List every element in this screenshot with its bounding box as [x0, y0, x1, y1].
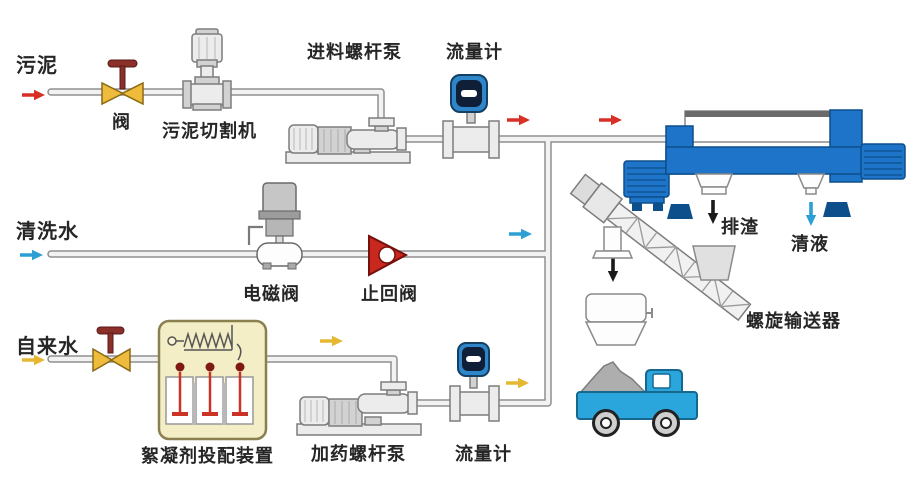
label-valve: 阀 [112, 114, 131, 132]
truck-wheel-icon [594, 411, 619, 436]
process-flow-diagram: 污泥 阀 污泥切割机 进料螺杆泵 流量计 清洗水 电磁阀 止回阀 自来水 絮凝剂… [0, 0, 921, 486]
pump-inlet-flange [381, 382, 406, 390]
decanter-centrifuge-device [624, 110, 905, 219]
label-feed-screw-pump: 进料螺杆泵 [307, 44, 402, 62]
label-tap-water: 自来水 [16, 336, 79, 356]
chemical-flow-arrow-icon [506, 378, 529, 388]
label-solenoid-valve: 电磁阀 [243, 286, 300, 304]
chemical-flow-arrow-icon [320, 336, 343, 346]
sludge-cutter-device [183, 29, 231, 110]
sludge-flow-arrow-icon [22, 90, 45, 100]
diagram-canvas [0, 0, 921, 486]
sludge-flow-arrow-icon [599, 115, 622, 125]
label-screw-conveyor: 螺旋输送器 [746, 313, 841, 331]
label-dosing-screw-pump: 加药螺杆泵 [311, 446, 406, 464]
label-clear-liquid: 清液 [791, 236, 829, 254]
flocculant-dosing-device [159, 321, 266, 439]
pump-casing [358, 394, 410, 413]
water-flow-arrow-icon [509, 229, 532, 239]
pump-motor [289, 125, 318, 153]
label-washing-water: 清洗水 [16, 221, 79, 241]
water-flow-arrow-icon [20, 250, 43, 260]
slag-hopper [693, 246, 735, 280]
conveyor-discharge-arrow-icon [608, 258, 618, 282]
centrifuge-foot [823, 202, 851, 217]
flow-meter-top-device [443, 75, 499, 158]
centrifuge-back-motor [624, 161, 669, 211]
slag-container [586, 294, 652, 345]
sludge-pile [580, 362, 646, 393]
label-flocculant-device: 絮凝剂投配装置 [141, 448, 274, 466]
clear-liquid-arrow-icon [806, 202, 816, 226]
centrifuge-bowl-cover [685, 111, 833, 117]
sludge-gate-valve [102, 60, 143, 104]
check-valve-device [369, 236, 406, 275]
slag-discharge-arrow-icon [708, 200, 718, 224]
dosing-screw-pump-device [297, 382, 421, 435]
solenoid-actuator [263, 183, 296, 214]
solenoid-valve-device [249, 183, 302, 269]
cake-discharge-hopper [696, 174, 732, 194]
liquid-discharge-hopper [798, 174, 824, 194]
label-sludge-inlet: 污泥 [16, 55, 58, 75]
pump-casing [347, 130, 399, 149]
centrifuge-main-motor [861, 144, 905, 179]
centrifuge-frame-beam [666, 147, 863, 174]
label-flow-meter-bottom: 流量计 [455, 446, 512, 464]
truck-window [653, 374, 670, 388]
label-flow-meter-top: 流量计 [446, 44, 503, 62]
label-slag-discharge: 排渣 [721, 219, 759, 237]
sludge-truck [577, 362, 697, 436]
truck-wheel-icon [654, 411, 679, 436]
pump-discharge-flange [408, 392, 417, 414]
centrifuge-foot [667, 204, 693, 219]
label-check-valve: 止回阀 [361, 286, 418, 304]
feed-screw-pump-device [286, 118, 410, 163]
pump-motor [300, 397, 329, 425]
conveyor-discharge-chute [604, 227, 621, 251]
label-sludge-cutter: 污泥切割机 [162, 123, 257, 141]
tap-water-gate-valve [93, 327, 130, 371]
pump-discharge-flange [397, 128, 406, 150]
sludge-flow-arrow-icon [507, 115, 530, 125]
pump-inlet-flange [369, 118, 394, 126]
flow-meter-bottom-device [450, 343, 499, 421]
